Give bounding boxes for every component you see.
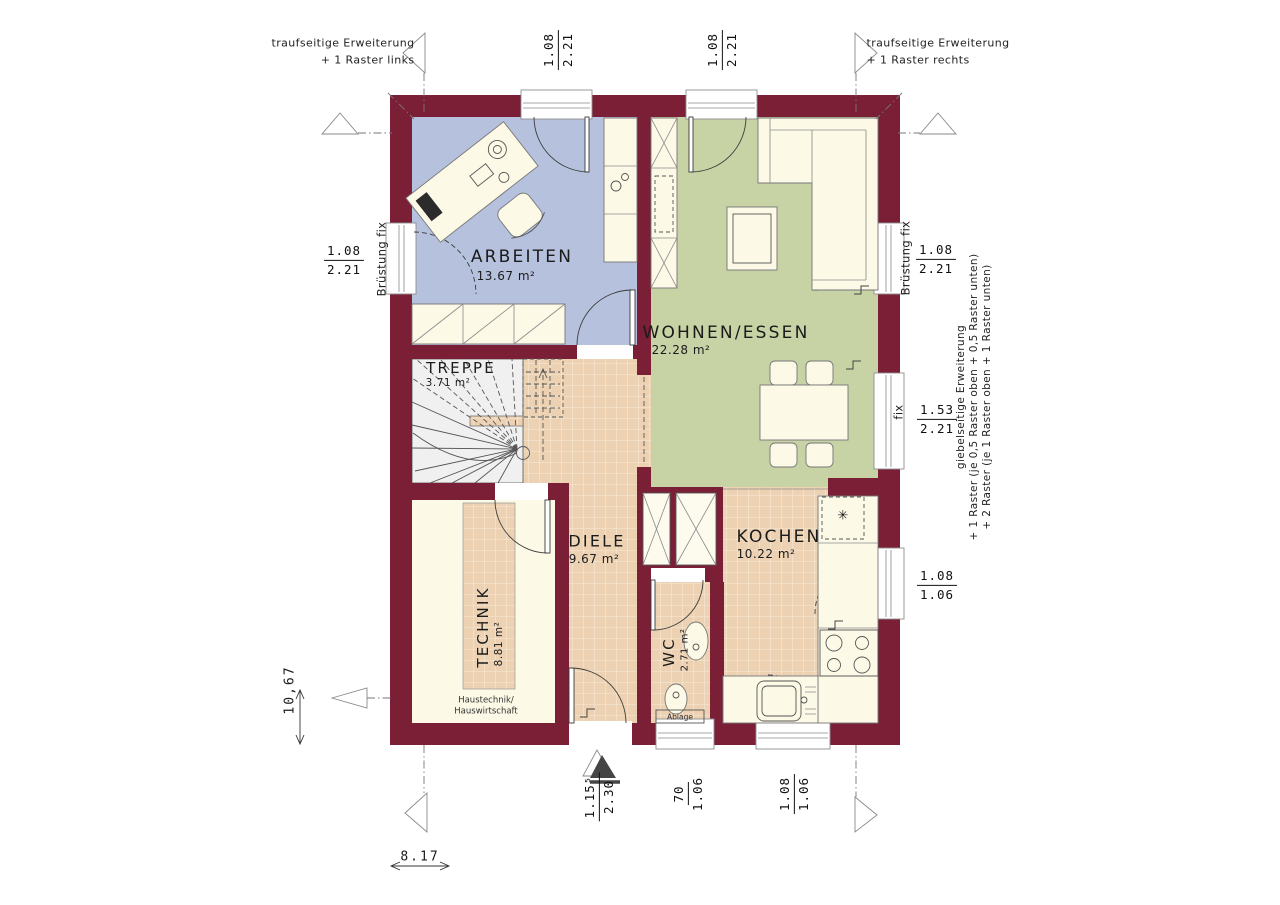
room-label-wohnen: WOHNEN/ESSEN <box>642 323 809 343</box>
annotation-trauf-left: traufseitige Erweiterung + 1 Raster link… <box>271 36 414 69</box>
dim-bottom-kitchen-window: 1.08 1.06 <box>777 774 811 814</box>
window-top-left <box>521 90 592 119</box>
dim-den: 2.21 <box>919 260 953 277</box>
room-label-technik: TECHNIK <box>474 586 492 667</box>
dim-den: 1.06 <box>920 586 954 603</box>
annotation-giebelseitige: giebelseitige Erweiterung + 1 Raster (je… <box>955 254 993 541</box>
dim-den: 2.21 <box>920 420 954 437</box>
dim-num: 1.08 <box>916 242 956 260</box>
wc-door-opening <box>651 568 705 582</box>
room-area-kochen: 10.22 m² <box>737 547 796 561</box>
installation-shafts <box>643 493 716 565</box>
annotation-brustung-right: Brüstung fix <box>897 221 914 296</box>
technik-door-opening <box>495 483 548 500</box>
annotation-giebel-line2: + 1 Raster (je 0,5 Raster oben + 0,5 Ras… <box>968 254 981 541</box>
media-shelf <box>651 118 677 288</box>
freezer-symbol: ✳ <box>838 509 849 524</box>
dim-bottom-wc-window: 70 1.06 <box>671 777 705 811</box>
dim-top-window-right: 1.08 2.21 <box>705 30 739 70</box>
annotation-trauf-right-line1: traufseitige Erweiterung <box>866 36 1009 53</box>
dim-den: 2.21 <box>559 33 576 67</box>
arbeiten-sideboard <box>604 118 637 262</box>
dim-num: 1.08 <box>705 30 723 70</box>
room-area-technik: 8.81 m² <box>493 622 505 667</box>
room-area-treppe: 3.71 m² <box>426 377 471 389</box>
annotation-trauf-left-line1: traufseitige Erweiterung <box>271 36 414 53</box>
dim-top-window-left: 1.08 2.21 <box>541 30 575 70</box>
coffee-table <box>727 207 777 270</box>
room-label-kochen: KOCHEN <box>737 527 822 547</box>
dim-bottom-entrance: 1.15⁵ 2.30 <box>582 773 616 822</box>
wc-toilet <box>665 684 687 714</box>
room-area-wc: 2.71 m² <box>680 629 691 672</box>
technik-note-line1: Haustechnik/ <box>454 695 517 706</box>
dim-num: 1.08 <box>777 774 795 814</box>
dim-den: 2.30 <box>600 780 617 814</box>
dim-den: 2.21 <box>327 261 361 278</box>
dim-num: 1.08 <box>541 30 559 70</box>
technik-note: Haustechnik/ Hauswirtschaft <box>454 695 517 716</box>
dim-den: 2.21 <box>723 33 740 67</box>
window-top-right <box>686 90 757 119</box>
floor-plan-drawing <box>0 0 1280 905</box>
dim-den: 1.06 <box>689 777 706 811</box>
room-area-arbeiten: 13.67 m² <box>477 269 536 283</box>
room-label-diele: DIELE <box>568 532 625 551</box>
entrance-opening <box>569 721 632 748</box>
dim-den: 1.06 <box>795 777 812 811</box>
dim-right-window-top: 1.08 2.21 <box>916 242 956 276</box>
dim-right-window-mid: 1.53 2.21 <box>917 402 957 436</box>
ablage-label: Ablage <box>667 713 693 722</box>
floor-plan-page: ARBEITEN 13.67 m² WOHNEN/ESSEN 22.28 m² … <box>0 0 1280 905</box>
dim-num: 70 <box>671 782 689 805</box>
annotation-fix-right: fix <box>890 404 907 419</box>
annotation-trauf-right-line2: + 1 Raster rechts <box>866 52 1009 69</box>
room-label-wc: WC <box>660 637 678 667</box>
room-label-treppe: TREPPE <box>426 359 496 377</box>
window-bottom-wc <box>656 719 714 749</box>
dim-num: 1.08 <box>324 243 364 261</box>
annotation-trauf-left-line2: + 1 Raster links <box>271 52 414 69</box>
arbeiten-door-opening <box>577 345 633 359</box>
arbeiten-cabinets <box>412 304 565 344</box>
dim-num: 1.53 <box>917 402 957 420</box>
dim-num: 1.08 <box>917 568 957 586</box>
dim-right-window-bottom: 1.08 1.06 <box>917 568 957 602</box>
annotation-giebel-line1: giebelseitige Erweiterung <box>955 254 968 541</box>
dim-num: 1.15⁵ <box>582 773 600 822</box>
dim-left-window: 1.08 2.21 <box>324 243 364 277</box>
technik-note-line2: Hauswirtschaft <box>454 706 517 717</box>
annotation-giebel-line3: + 2 Raster (je 1 Raster oben + 1 Raster … <box>980 254 993 541</box>
room-area-wohnen: 22.28 m² <box>652 343 711 357</box>
annotation-brustung-left: Brüstung fix <box>373 222 390 297</box>
room-label-arbeiten: ARBEITEN <box>471 247 573 267</box>
dim-overall-width: 8.17 <box>400 850 439 865</box>
window-bottom-kitchen <box>756 719 830 749</box>
dim-overall-height: 10,67 <box>283 665 298 714</box>
window-right-bottom <box>874 548 904 619</box>
annotation-trauf-right: traufseitige Erweiterung + 1 Raster rech… <box>866 36 1009 69</box>
room-area-diele: 9.67 m² <box>569 552 620 566</box>
window-right-mid-fix <box>874 373 904 469</box>
